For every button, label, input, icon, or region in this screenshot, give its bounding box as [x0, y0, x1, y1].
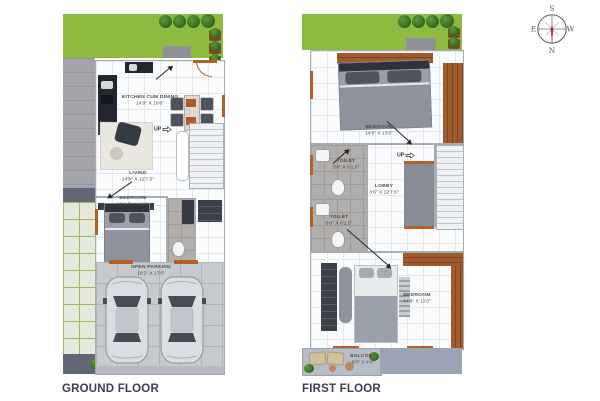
pillow [387, 70, 421, 83]
window [310, 155, 313, 175]
roof-step [406, 38, 436, 50]
wood-deck [443, 63, 463, 143]
shrub [449, 26, 459, 36]
shrub [173, 15, 186, 28]
planter-pot [329, 365, 336, 372]
compass-rose: S N E W [526, 1, 578, 55]
coffee-table [110, 147, 123, 160]
blanket [105, 228, 149, 262]
staircase [436, 145, 464, 230]
room-label-parking: OPEN PARKING 19'2" X 17'0" [131, 264, 171, 276]
open-parking-slab: OPEN PARKING 19'2" X 17'0" [95, 262, 225, 375]
planter-pot [209, 43, 221, 54]
stair-edge [404, 226, 434, 229]
room-label-bedroom: BEDROOM 10'4.5" X 11'0" [117, 195, 149, 207]
window [310, 207, 313, 227]
kitchen-hob [101, 95, 113, 104]
floor-plan-sheet: KITCHEN CUM DINING 14'9" X 10'0" UP LIVI… [0, 0, 600, 401]
room-label-toilet-top: TOILET 5'8" X 6'1.5" [333, 158, 360, 170]
interior-wall [194, 198, 196, 263]
ground-floor-house: KITCHEN CUM DINING 14'9" X 10'0" UP LIVI… [95, 60, 225, 264]
shrub [449, 37, 459, 47]
bed [354, 265, 398, 343]
toilet-bowl [331, 179, 345, 196]
compass-label-south: S [549, 4, 554, 13]
room-label-toilet-bottom: TOILET 5'8" X 6'1.5" [326, 214, 353, 226]
window [95, 209, 98, 235]
entry-door [193, 60, 217, 63]
bed [338, 59, 432, 130]
dining-chair [200, 97, 214, 111]
compass-label-north: N [549, 46, 556, 55]
paver-walkway [63, 202, 95, 354]
window [310, 71, 313, 99]
dining-chair [170, 113, 184, 127]
stair-landing [404, 164, 434, 226]
first-floor-title: FIRST FLOOR [302, 383, 381, 395]
wood-deck [451, 265, 463, 349]
path-border [63, 188, 95, 202]
ground-floor-title: GROUND FLOOR [62, 383, 159, 395]
room-label-lobby: LOBBY 3'6" X 12'7.5" [369, 183, 398, 195]
room-label-kitchen: KITCHEN CUM DINING 14'9" X 10'0" [122, 94, 179, 106]
pillow [129, 213, 145, 223]
pointer-arrow [156, 68, 171, 80]
pillow [345, 71, 379, 84]
lounge-mat [326, 351, 344, 365]
up-label: UP [154, 127, 161, 132]
sheet-fold [105, 228, 149, 230]
ground-floor-plan: KITCHEN CUM DINING 14'9" X 10'0" UP LIVI… [63, 14, 223, 374]
car [103, 277, 151, 363]
room-label-bedroom-bottom: BEDROOM 14'9" X 11'0" [403, 292, 431, 304]
entry-step [163, 46, 191, 58]
wardrobe [321, 263, 337, 331]
side-driveway [63, 58, 95, 188]
toilet-bowl [172, 241, 185, 257]
staircase [189, 123, 224, 189]
shrub [187, 15, 200, 28]
appliance-door [129, 64, 137, 71]
first-floor-house: BEDROOM 14'9" X 10'0" TOILET 5'8" X 6'1.… [310, 50, 464, 350]
planter-pot [209, 30, 221, 41]
stairs-up-indicator: UP [154, 126, 172, 133]
shrub [210, 41, 220, 51]
stairs-up-indicator: UP [397, 152, 415, 159]
shrub [398, 15, 411, 28]
up-label: UP [397, 153, 404, 158]
washbasin [315, 149, 330, 162]
pillow [359, 268, 374, 278]
up-arrow-icon [162, 126, 172, 133]
room-label-balcony: BALCONY 8'0" X 4'0" [350, 353, 376, 365]
bed [104, 203, 150, 263]
placemat [186, 99, 196, 107]
stair-railing [176, 131, 189, 181]
shrub [426, 15, 439, 28]
shower-unit [182, 200, 194, 224]
shrub [210, 28, 220, 38]
balcony: BALCONY 8'0" X 4'0" [302, 348, 382, 376]
blanket [355, 296, 397, 342]
shrub [201, 14, 215, 28]
compass-label-east: E [531, 25, 536, 34]
room-label-bedroom-top: BEDROOM 14'9" X 10'0" [365, 124, 393, 136]
first-floor-plan: BEDROOM 14'9" X 10'0" TOILET 5'8" X 6'1.… [302, 14, 462, 374]
room-label-living: LIVING 14'9" X 12'7.5" [122, 170, 154, 182]
window [222, 95, 225, 117]
shrub [304, 364, 314, 373]
entry-door-arc [196, 61, 212, 77]
kitchen-sink [101, 81, 113, 89]
slab-edge [96, 366, 224, 374]
shrub [412, 15, 425, 28]
shrub [159, 15, 172, 28]
compass-label-west: W [567, 25, 575, 34]
up-arrow-icon [405, 152, 415, 159]
lower-roof-terrace [380, 348, 462, 374]
dresser [198, 200, 222, 222]
blanket [340, 82, 431, 129]
car [158, 277, 206, 363]
toilet-bowl [331, 231, 345, 248]
planter-pot [448, 39, 460, 49]
chaise [339, 267, 352, 323]
pillow [109, 213, 125, 223]
parked-cars [96, 262, 224, 374]
